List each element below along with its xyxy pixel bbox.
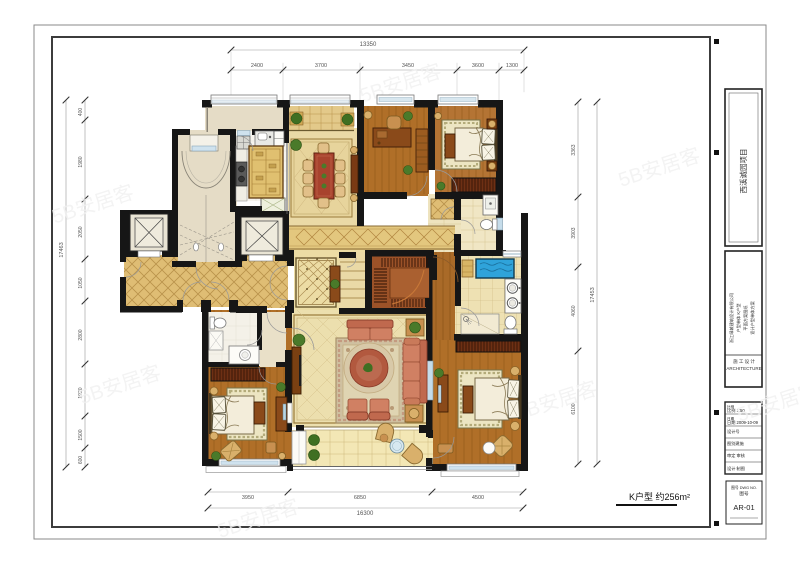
svg-text:3700: 3700 <box>315 63 327 69</box>
svg-text:4500: 4500 <box>472 495 484 501</box>
svg-text:ARCHITECTURE: ARCHITECTURE <box>726 366 761 371</box>
svg-text:2050: 2050 <box>78 226 84 237</box>
svg-text:审定 审核: 审定 审核 <box>727 452 746 459</box>
svg-text:浙江绿城建筑设计有限公司: 浙江绿城建筑设计有限公司 <box>728 293 735 343</box>
svg-text:2800: 2800 <box>78 329 84 340</box>
svg-text:户型单体 K户型: 户型单体 K户型 <box>735 303 742 332</box>
svg-text:3600: 3600 <box>472 63 484 69</box>
svg-text:设计 制图: 设计 制图 <box>727 465 745 472</box>
svg-text:6850: 6850 <box>354 495 366 501</box>
svg-text:图号 DWG NO.: 图号 DWG NO. <box>731 485 757 490</box>
svg-text:1300: 1300 <box>506 63 518 69</box>
svg-text:设计户型单体方案: 设计户型单体方案 <box>749 300 756 334</box>
svg-text:17453: 17453 <box>590 287 596 302</box>
svg-text:4060: 4060 <box>571 305 577 316</box>
svg-text:17463: 17463 <box>59 242 65 257</box>
svg-text:600: 600 <box>78 456 84 465</box>
svg-text:西溪诚园项目: 西溪诚园项目 <box>738 149 748 194</box>
svg-text:3363: 3363 <box>571 144 577 155</box>
svg-text:图别建施: 图别建施 <box>727 440 745 447</box>
svg-text:1050: 1050 <box>78 277 84 288</box>
svg-text:400: 400 <box>78 108 84 117</box>
svg-text:1500: 1500 <box>78 429 84 440</box>
svg-text:16300: 16300 <box>357 511 374 517</box>
svg-text:2400: 2400 <box>251 63 263 69</box>
svg-text:施 工 设 计: 施 工 设 计 <box>733 358 755 365</box>
svg-text:平面方案图纸: 平面方案图纸 <box>742 305 749 331</box>
svg-text:13350: 13350 <box>360 42 377 48</box>
svg-text:设计号: 设计号 <box>727 428 740 435</box>
svg-text:K户型 约256m²: K户型 约256m² <box>629 491 690 502</box>
svg-text:3950: 3950 <box>242 495 254 501</box>
svg-text:3903: 3903 <box>571 227 577 238</box>
svg-text:AR-01: AR-01 <box>733 503 754 512</box>
svg-text:1980: 1980 <box>78 156 84 167</box>
